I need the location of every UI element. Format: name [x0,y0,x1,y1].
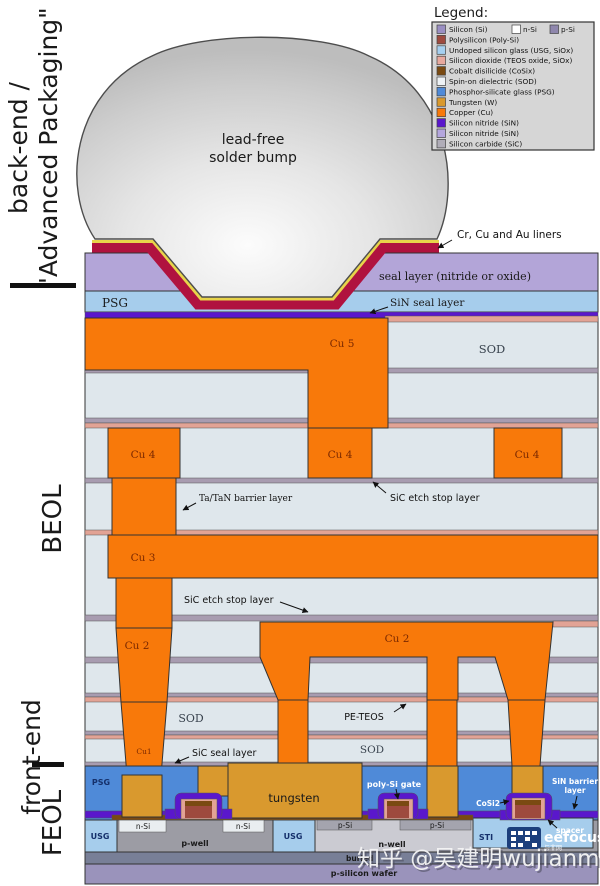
w-contact-2 [427,766,458,817]
cu4-mid-label: Cu 4 [328,449,353,461]
legend-title: Legend: [434,5,488,21]
psg-bottom-label: PSG [92,778,110,787]
svg-text:Silicon (Si): Silicon (Si) [449,25,488,34]
backend-label-line1: back-end / [4,81,33,213]
cosi2-cap-1 [185,801,212,806]
ta-tan-label: Ta/TaN barrier layer [199,494,293,504]
p-si-swatch [550,25,559,34]
sin-barrier-label-2: layer [564,786,585,795]
legend-row-copper: Copper (Cu) [437,108,493,117]
legend: Legend: Silicon (Si) n-Si p-Si Polysilic… [432,5,594,150]
sin-barrier-label-1: SiN barrier [552,777,598,786]
legend-row-poly: Polysilicon (Poly-Si) [437,35,519,44]
svg-text:n-Si: n-Si [523,25,537,34]
sod-label-2: SOD [178,712,204,725]
n-si-right-label: n-Si [236,822,250,831]
legend-row-sod: Spin-on dielectric (SOD) [437,77,537,86]
legend-row-usg: Undoped silicon glass (USG, SiOx) [437,46,573,55]
teos-line-1 [385,316,598,322]
svg-text:Phosphor-silicate glass (PSG): Phosphor-silicate glass (PSG) [449,87,555,96]
cu5-label: Cu 5 [330,338,355,350]
svg-text:Undoped silicon glass (USG, Si: Undoped silicon glass (USG, SiOx) [449,46,573,55]
layer-stack [85,253,598,776]
cu1-via [121,702,167,776]
w-gate-contact-1 [198,766,232,796]
legend-row-sin1: Silicon nitride (SiN) [437,119,519,128]
cu2-via-b [427,700,457,766]
watermark-text: 知乎 @吴建明wujianming [357,846,600,872]
p-si-left-label: p-Si [338,821,352,830]
cu3-label: Cu 3 [131,552,156,564]
n-si-swatch [512,25,521,34]
legend-row-cosix: Cobalt disilicide (CoSix) [437,67,535,76]
p-well-label: p-well [181,839,209,848]
legend-row-sin2: Silicon nitride (SiN) [437,129,519,138]
cu2-right-label: Cu 2 [385,633,410,645]
liners-annotation: Cr, Cu and Au liners [457,229,562,241]
svg-text:p-Si: p-Si [561,25,575,34]
watermark: 知乎 @吴建明wujianming 知乎 @吴建明wujianming [357,846,600,874]
poly-gate-3 [515,805,541,818]
eefocus-logo-text: eefocus [544,830,600,846]
cu3-line [108,535,598,578]
sic-etch-label-2: SiC etch stop layer [184,595,274,606]
transistor-3 [500,793,560,820]
feol-label: FEOL [38,789,68,856]
bump-label-line1: lead-free [222,132,285,148]
legend-row-teos: Silicon dioxide (TEOS oxide, SiOx) [437,56,572,65]
p-si-right-label: p-Si [430,821,444,830]
sod-label-3: SOD [360,744,384,756]
backend-label-line2: "Advanced Packaging" [34,7,63,288]
cu2-via-c [508,700,545,766]
svg-text:Spin-on dielectric (SOD): Spin-on dielectric (SOD) [449,77,537,86]
cu2-via-a [278,700,308,766]
svg-text:Tungsten (W): Tungsten (W) [448,98,497,107]
backend-beol-divider [10,283,76,288]
usg-mid-label: USG [284,832,303,841]
sic-seal-label: SiC seal layer [192,748,257,759]
psg-top-label: PSG [102,296,128,310]
svg-text:Copper (Cu): Copper (Cu) [449,108,493,117]
tungsten-label: tungsten [268,791,319,805]
poly-gate-label: poly-Si gate [367,780,422,789]
cu4-left-label: Cu 4 [131,449,156,461]
cu4-left-via [112,478,176,537]
cosi2-label: CoSi2 [476,799,500,808]
legend-row-sic: Silicon carbide (SiC) [437,139,522,148]
cu3-via [116,578,172,628]
cu4-right-label: Cu 4 [515,449,540,461]
svg-text:Silicon nitride (SiN): Silicon nitride (SiN) [449,129,519,138]
diagram-canvas: back-end / "Advanced Packaging" BEOL fro… [0,0,600,886]
beol-label: BEOL [38,484,68,554]
bump-label-line2: solder bump [209,150,297,166]
svg-text:Silicon nitride (SiN): Silicon nitride (SiN) [449,119,519,128]
svg-text:Cobalt disilicide (CoSix): Cobalt disilicide (CoSix) [449,67,535,76]
sic-etch-label-1: SiC etch stop layer [390,493,480,504]
sti-label: STI [479,833,493,842]
svg-text:Polysilicon (Poly-Si): Polysilicon (Poly-Si) [449,35,519,44]
cosi2-cap-2 [387,801,409,806]
cu2-left-label: Cu 2 [125,640,150,652]
seal-layer-label: seal layer (nitride or oxide) [379,270,531,283]
beol-feol-divider [32,762,64,767]
svg-text:Silicon dioxide (TEOS oxide, S: Silicon dioxide (TEOS oxide, SiOx) [449,56,572,65]
cosi2-cap-3 [515,800,541,805]
n-si-left-label: n-Si [136,822,150,831]
svg-text:Silicon carbide (SiC): Silicon carbide (SiC) [449,139,522,148]
legend-row-psg: Phosphor-silicate glass (PSG) [437,87,555,96]
pe-teos-label: PE-TEOS [344,712,384,723]
w-contact-1 [122,775,162,817]
usg-left-label: USG [91,832,110,841]
sod-label-1: SOD [479,342,506,356]
poly-gate-1 [185,806,212,818]
cmos-cross-section-diagram: back-end / "Advanced Packaging" BEOL fro… [0,0,600,886]
sin-seal-label: SiN seal layer [390,297,465,309]
poly-gate-2 [387,806,409,818]
cu1-label: Cu1 [136,747,151,756]
